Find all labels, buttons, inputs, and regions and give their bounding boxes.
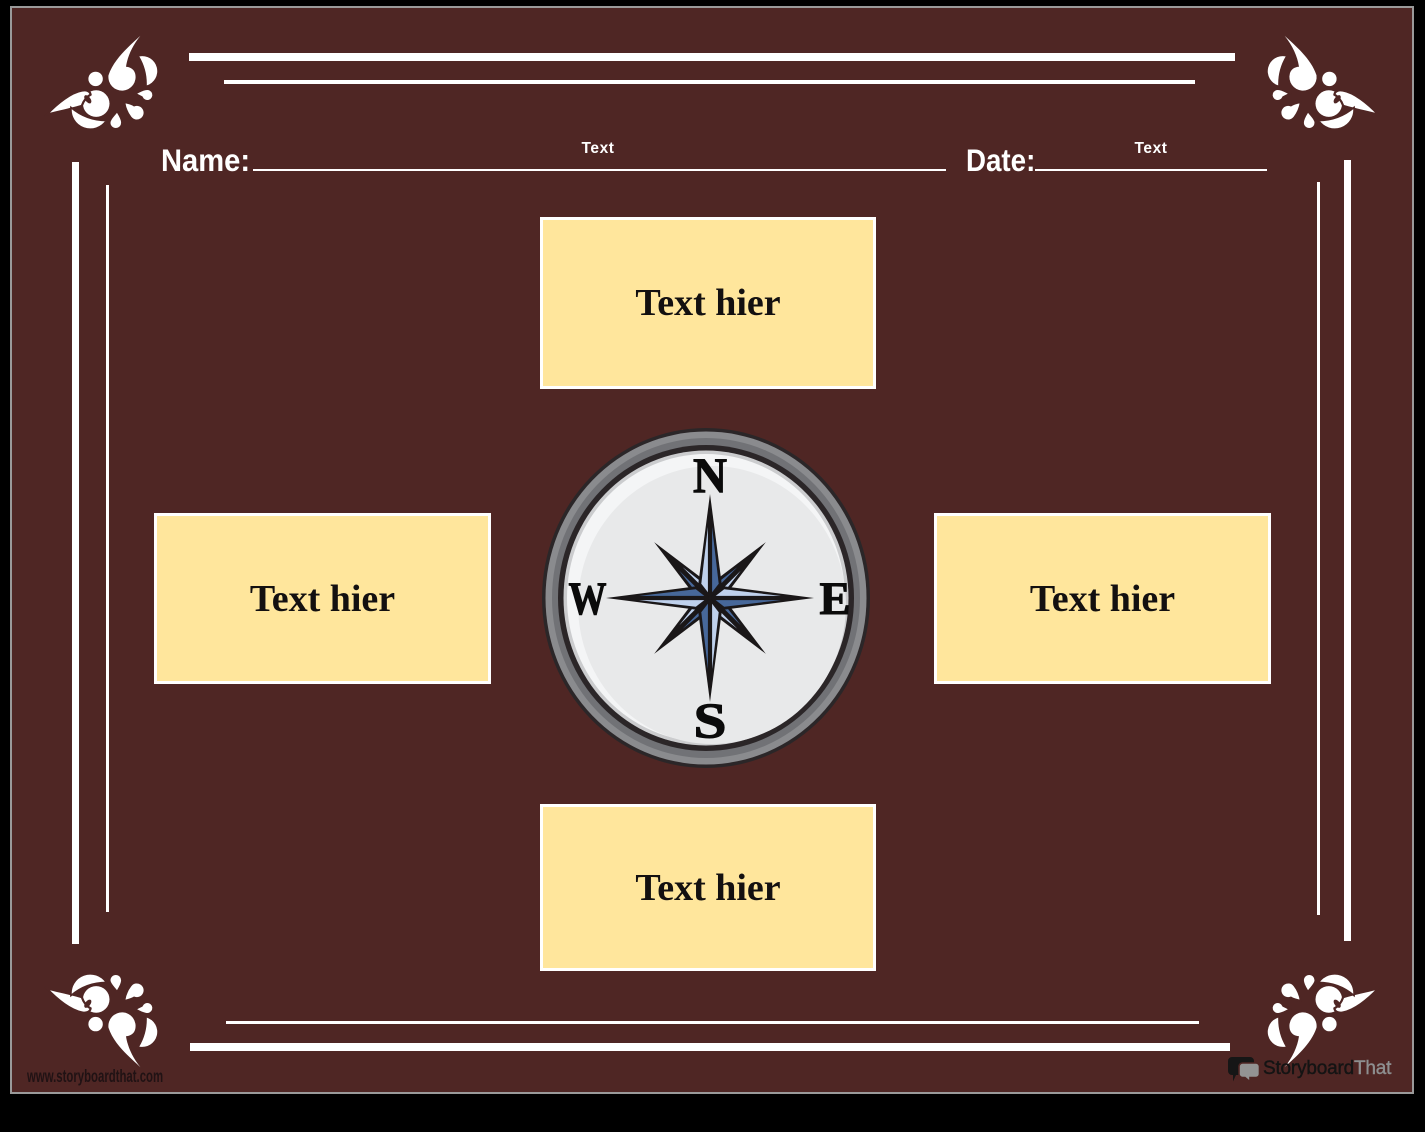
svg-text:N: N xyxy=(693,447,727,503)
svg-text:S: S xyxy=(694,692,727,748)
svg-text:E: E xyxy=(820,573,851,625)
svg-text:W: W xyxy=(569,573,607,625)
